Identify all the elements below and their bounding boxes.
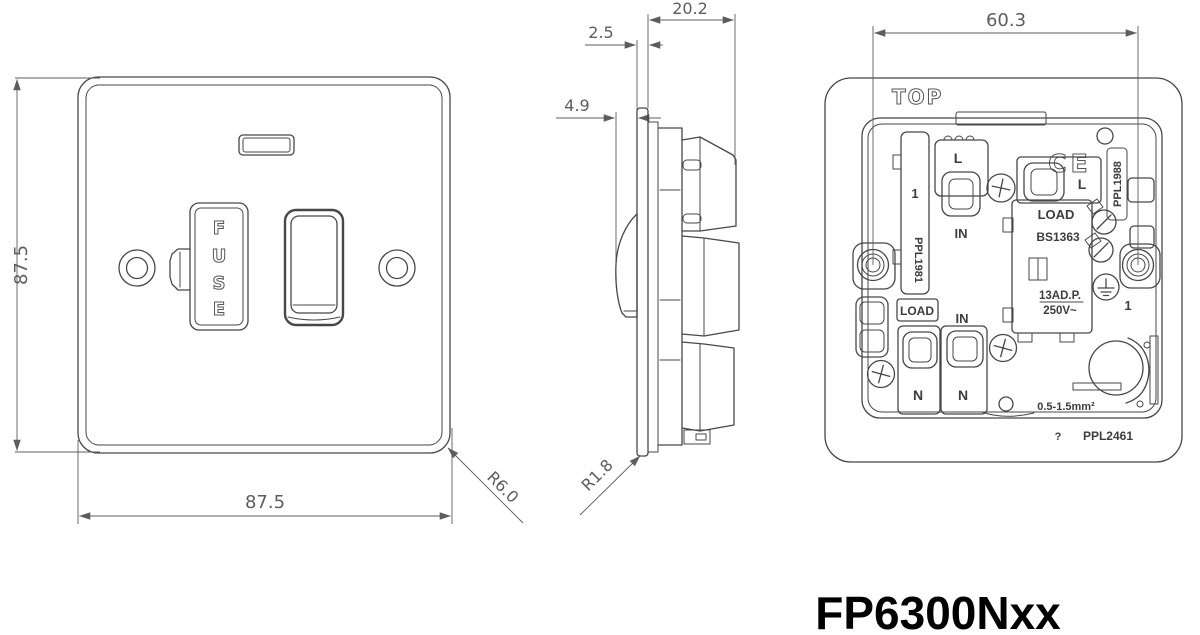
rocker-switch <box>285 210 343 325</box>
fuse-standard-label: BS1363 <box>1036 230 1080 244</box>
front-height-value: 87.5 <box>11 245 32 285</box>
neon-indicator-window <box>239 135 294 155</box>
neutral-terminal-block-2: N <box>941 326 987 414</box>
front-plate-inner-line <box>86 85 442 445</box>
part-number-left: PPL1981 <box>912 237 924 283</box>
fuse-letter-f: F <box>213 218 225 239</box>
neutral-terminal-2-label: N <box>958 387 968 403</box>
earth-terminal <box>1093 274 1119 300</box>
rear-left-strip: 1 PPL1981 <box>893 132 929 294</box>
neutral-terminal-block-1: N <box>898 326 940 414</box>
wire-capacity-label: 0.5-1.5mm² <box>1037 401 1095 413</box>
in-label-top: IN <box>955 226 968 241</box>
fixing-centres-value: 60.3 <box>986 10 1026 31</box>
front-height-dimension: 87.5 <box>11 78 100 452</box>
side-depth-value: 20.2 <box>672 0 708 18</box>
rear-screw-top-center <box>987 174 1015 202</box>
front-corner-radius-leader: R6.0 <box>448 448 523 523</box>
front-plate-outline <box>78 77 450 453</box>
fuse-letter-e: E <box>213 299 225 320</box>
side-protrusion-dimension: 4.9 <box>556 96 661 282</box>
side-rocker-profile <box>616 214 637 317</box>
front-view: F U S E 87.5 <box>11 77 523 524</box>
side-depth-dimension: 20.2 <box>648 0 735 165</box>
rear-bottom-cutout <box>982 412 1034 416</box>
rear-right-tabs <box>1128 178 1154 248</box>
live-terminal-1-label: L <box>954 150 963 166</box>
part-number-bottom: PPL2461 <box>1083 429 1133 443</box>
rear-view: TOP CE 1 PPL1981 LOAD <box>825 10 1182 462</box>
fuse-holder: F U S E <box>170 203 248 330</box>
neutral-terminal-1-label: N <box>913 387 923 403</box>
rear-load-box-left: LOAD <box>897 299 938 321</box>
rear-fixing-dimension: 60.3 <box>873 10 1138 265</box>
live-terminal-2-label: L <box>1078 176 1087 192</box>
hole-marker-left: 1 <box>911 186 918 201</box>
fuse-letter-u: U <box>212 246 227 267</box>
drawing-sheet: F U S E 87.5 <box>0 0 1200 635</box>
cable-clamp <box>1073 336 1158 407</box>
front-corner-radius-value: R6.0 <box>483 467 522 506</box>
front-screw-right <box>379 250 415 286</box>
hole-marker-right: 1 <box>1124 298 1131 313</box>
top-orientation-label: TOP <box>892 85 943 109</box>
side-view: 20.2 2.5 4.9 <box>556 0 739 515</box>
side-thickness-dimension: 2.5 <box>585 23 663 216</box>
in-label-bottom: IN <box>956 311 969 326</box>
rating-line2: 250V~ <box>1043 305 1077 317</box>
rear-left-bracket <box>856 297 888 357</box>
rear-bottom-hole <box>999 397 1013 411</box>
fuse-clip-screws <box>1085 199 1116 262</box>
load-label-left: LOAD <box>900 304 934 318</box>
side-protrusion-value: 4.9 <box>564 96 589 115</box>
manufacturer-mark: ? <box>1055 431 1062 443</box>
load-label-fuse: LOAD <box>1038 207 1075 222</box>
front-width-value: 87.5 <box>245 492 285 513</box>
rating-line1: 13AD.P. <box>1039 290 1081 302</box>
side-faceplate-profile <box>637 108 648 456</box>
fuse-letter-s: S <box>213 273 226 294</box>
model-number: FP6300Nxx <box>815 587 1061 635</box>
live-terminal-block-1: L IN <box>935 136 988 241</box>
rear-screw-bottom-left <box>868 361 895 388</box>
part-number-right: PPL1988 <box>1112 161 1124 207</box>
front-width-dimension: 87.5 <box>78 428 452 524</box>
rear-top-right-hole <box>1097 128 1113 144</box>
side-corner-radius-value: R1.8 <box>577 455 616 494</box>
fuse-window <box>1029 258 1038 280</box>
fuse-carrier: LOAD BS1363 13AD.P. 250V~ <box>1003 200 1092 342</box>
technical-drawing: F U S E 87.5 <box>0 0 1200 635</box>
side-thickness-value: 2.5 <box>588 23 613 42</box>
rear-right-label: PPL1988 <box>1107 148 1127 220</box>
side-corner-radius-leader: R1.8 <box>577 455 640 515</box>
side-mechanism-body <box>648 122 739 452</box>
rear-mounting-hole-left <box>853 243 895 289</box>
rear-mounting-hole-right: 1 <box>1120 244 1160 313</box>
rear-screw-bottom-center <box>990 335 1017 362</box>
front-screw-left <box>119 250 155 286</box>
